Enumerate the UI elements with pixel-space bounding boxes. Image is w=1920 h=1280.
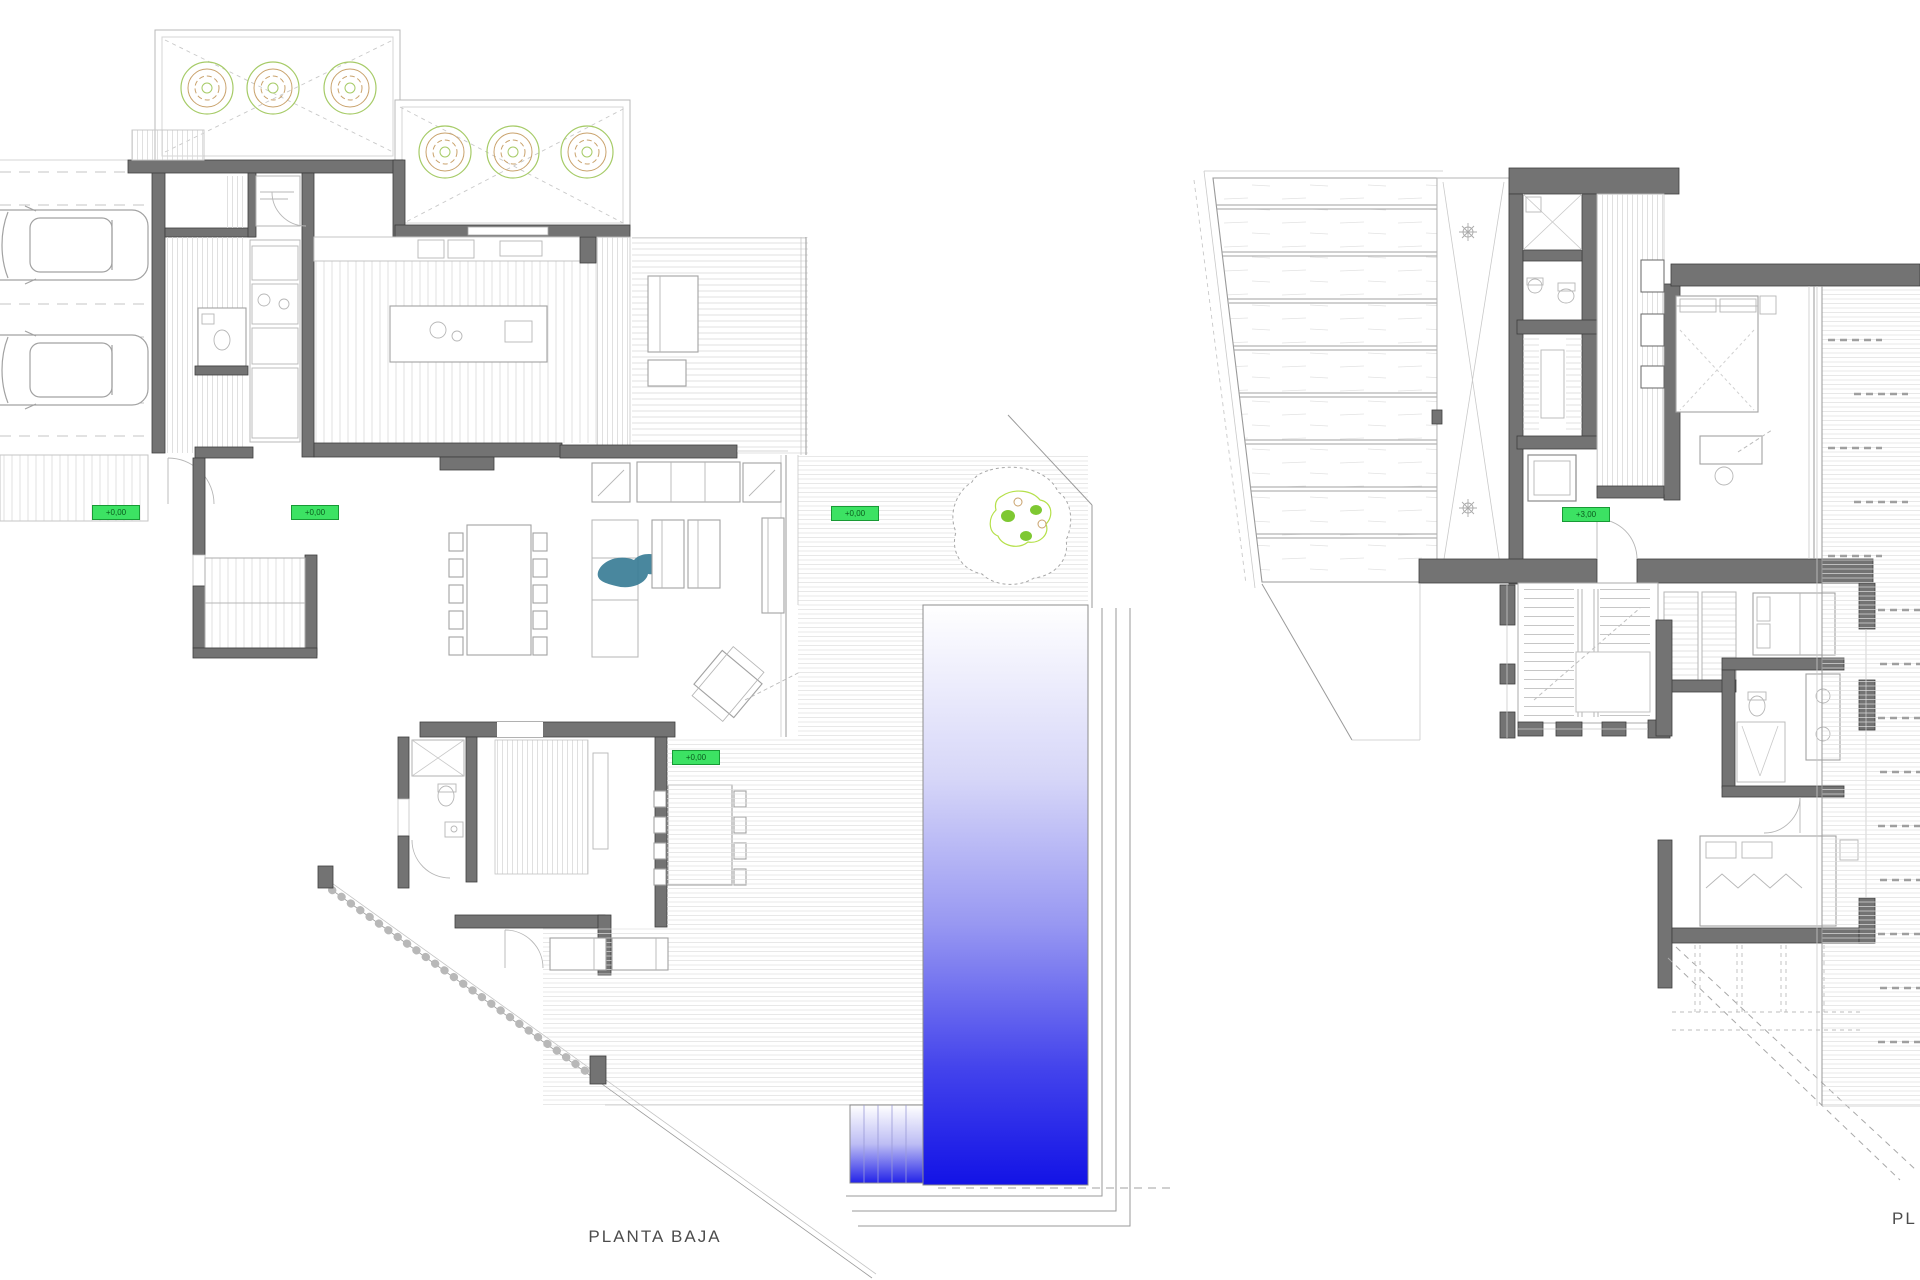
garage bbox=[0, 160, 165, 521]
first-floor-plan bbox=[1194, 168, 1920, 1180]
sideboard bbox=[593, 753, 608, 849]
dining-table bbox=[467, 525, 531, 655]
patio-north-east bbox=[395, 100, 630, 230]
coffee-table bbox=[592, 520, 638, 657]
toilet-icon bbox=[438, 786, 454, 806]
bed bbox=[1700, 836, 1836, 926]
cabinet bbox=[762, 518, 784, 613]
elevation-marker-driveway: +0,00 bbox=[92, 505, 140, 520]
pool-steps bbox=[850, 1105, 923, 1183]
armchair bbox=[652, 520, 684, 588]
right-terrace bbox=[1817, 286, 1920, 1106]
sofa bbox=[637, 462, 740, 502]
elevation-marker-terrace: +0,00 bbox=[672, 750, 720, 765]
armchair bbox=[688, 520, 720, 588]
sun-lounger bbox=[550, 938, 606, 970]
outdoor-sofa bbox=[648, 276, 698, 352]
car-icon bbox=[0, 206, 148, 284]
ground-floor-plan bbox=[0, 30, 1172, 1278]
kitchen-island bbox=[390, 306, 547, 362]
closet-strip bbox=[1597, 194, 1664, 498]
toilet-icon bbox=[1749, 696, 1765, 716]
wardrobe bbox=[1566, 334, 1582, 434]
sun-lounger bbox=[612, 938, 668, 970]
garden-shrub bbox=[953, 467, 1071, 584]
elevation-marker-pool-deck: +0,00 bbox=[831, 506, 879, 521]
kitchen-counter bbox=[250, 240, 300, 442]
stairwell bbox=[1500, 583, 1672, 738]
ground-floor-title: PLANTA BAJA bbox=[555, 1227, 755, 1247]
upper-terrace bbox=[632, 237, 808, 455]
first-floor-title-partial: PL bbox=[1892, 1209, 1917, 1229]
pantry-room bbox=[256, 176, 300, 226]
desk bbox=[1700, 436, 1762, 464]
entry-door-arc bbox=[168, 458, 214, 504]
bed bbox=[1676, 296, 1758, 412]
lounge-chair bbox=[688, 643, 769, 725]
basin-icon bbox=[1528, 279, 1542, 293]
blueprint-canvas: +0,00 +0,00 +0,00 +0,00 +3,00 PLANTA BAJ… bbox=[0, 0, 1920, 1280]
slat-screen bbox=[495, 740, 588, 874]
kitchen bbox=[314, 225, 630, 470]
elevation-marker-entry: +0,00 bbox=[291, 505, 339, 520]
car-icon bbox=[0, 331, 148, 409]
toilet-room bbox=[198, 308, 246, 366]
chair-icon bbox=[1715, 467, 1733, 485]
living-room bbox=[193, 445, 800, 737]
roof-deck bbox=[1194, 171, 1443, 588]
wardrobe bbox=[1523, 334, 1539, 434]
elevation-marker-landing: +3,00 bbox=[1562, 507, 1610, 522]
sink-icon bbox=[445, 822, 463, 837]
master-bedroom bbox=[1676, 286, 1814, 559]
storage-room bbox=[1528, 455, 1576, 501]
floor-plan-drawing bbox=[0, 0, 1920, 1280]
